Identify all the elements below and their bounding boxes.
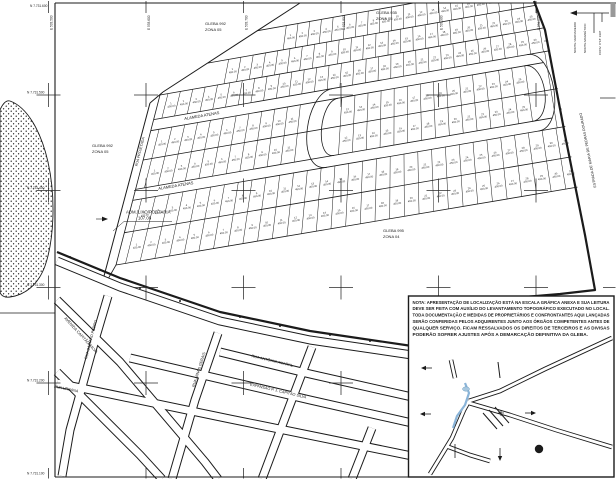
lot-label: 11450.00 [405, 11, 415, 19]
lot-label: 15450.00 [383, 99, 393, 107]
lot-label: 19450.00 [436, 90, 446, 98]
lot-divider [487, 140, 490, 171]
lot-divider [528, 133, 532, 164]
lot-label: 30450.00 [531, 37, 541, 45]
lot-divider [346, 195, 348, 226]
lot-divider [262, 178, 266, 210]
lot-label: 6450.00 [229, 90, 239, 98]
lot-divider [461, 176, 463, 207]
lot-divider [447, 178, 449, 209]
lot-label: 11450.00 [288, 116, 298, 124]
lot-label: 19450.00 [393, 166, 403, 174]
lot-divider [331, 197, 333, 228]
lot-label: 22450.00 [478, 111, 488, 119]
inset-pond [463, 387, 470, 391]
lot-label: 13450.00 [429, 7, 439, 15]
lot-label: 22450.00 [489, 20, 499, 28]
lot-label: 2450.00 [147, 239, 157, 247]
lot-divider [509, 0, 512, 10]
west-street-inner [116, 95, 160, 265]
lot-label: 14450.00 [369, 130, 379, 138]
lot-divider [473, 75, 475, 103]
lot-label: 14450.00 [440, 5, 450, 13]
lot-label: 25450.00 [479, 183, 489, 191]
lot-divider [459, 145, 461, 176]
lot-label: 8450.00 [233, 225, 243, 233]
lot-divider [428, 48, 429, 72]
lot-divider [465, 42, 467, 66]
lot-label: 6450.00 [223, 127, 233, 135]
lot-label: 24450.00 [502, 79, 512, 87]
lot-label: 16450.00 [396, 125, 406, 133]
lot-label: 29450.00 [533, 143, 543, 151]
lot-divider [499, 70, 502, 98]
lot-divider [420, 84, 421, 112]
grid-label-top: E 533.600 [147, 15, 151, 30]
lot-divider [485, 0, 487, 14]
lot-divider [363, 36, 364, 60]
lot-label: 15450.00 [452, 3, 462, 11]
lot-label: 23450.00 [492, 109, 502, 117]
lot-divider [228, 214, 233, 246]
lot-label: 7450.00 [357, 20, 367, 28]
lot-label: 23450.00 [449, 157, 459, 165]
lot-divider [355, 13, 356, 37]
lot-label: 10450.00 [271, 147, 281, 155]
lot-divider [504, 168, 507, 199]
lot-divider [561, 159, 566, 189]
west-street-outer [104, 103, 150, 276]
gleba-top-left-2: ZONA 05 [205, 27, 222, 32]
lot-label: 10450.00 [280, 81, 290, 89]
lot-divider [184, 221, 190, 253]
lot-divider [527, 31, 530, 54]
grid-label-top: E 533.900 [440, 15, 444, 30]
lot-label: 16450.00 [464, 1, 474, 9]
lot-divider [461, 105, 463, 133]
lot-label: 13450.00 [356, 104, 366, 112]
lot-label: 4450.00 [182, 202, 192, 210]
lot-label: 4450.00 [191, 161, 201, 169]
lot-divider [462, 18, 464, 42]
survey-mark [99, 269, 101, 271]
lot-label: 27450.00 [508, 178, 518, 186]
lot-divider [283, 26, 286, 50]
survey-mark [369, 340, 371, 342]
lot-label: 23450.00 [450, 188, 460, 196]
admin-label: ADM./LIXO/PORTARIA [126, 210, 171, 215]
lot-divider [312, 44, 314, 68]
lot-divider [425, 25, 426, 49]
grid-label-top: E 533.500 [50, 15, 54, 30]
lot-label: 5450.00 [217, 92, 227, 100]
lot-divider [276, 175, 280, 207]
lot-divider [474, 16, 476, 40]
lot-label: 4450.00 [265, 60, 275, 68]
lot-label: 3450.00 [310, 28, 320, 36]
lot-divider [360, 192, 361, 223]
lot-label: 1450.00 [167, 100, 177, 108]
lot-label: 8450.00 [244, 152, 254, 160]
lot-divider [450, 20, 451, 44]
lot-divider [518, 166, 522, 197]
lot-divider [325, 42, 327, 66]
lot-label: 6450.00 [217, 156, 227, 164]
lot-divider [511, 10, 514, 33]
lot-label: 20450.00 [451, 116, 461, 124]
lot-divider [437, 23, 438, 47]
lot-label: 5450.00 [278, 57, 288, 65]
lot-label: 1450.00 [286, 32, 296, 40]
gleba-center-1: GLEBA 995 [383, 228, 405, 233]
lot-divider [274, 51, 277, 75]
lot-label: 12450.00 [294, 183, 304, 191]
lot-label: 9450.00 [252, 190, 262, 198]
lot-label: 12450.00 [291, 215, 301, 223]
lot-divider [367, 11, 368, 35]
lot-label: 2450.00 [170, 136, 180, 144]
lot-label: 11450.00 [277, 217, 287, 225]
lot-label: 19450.00 [452, 27, 462, 35]
lot-divider [561, 49, 568, 87]
lot-label: 13450.00 [306, 212, 316, 220]
lot-label: 3450.00 [192, 96, 202, 104]
lot-divider [502, 98, 505, 126]
lot-divider [523, 7, 526, 30]
lot-label: 3450.00 [161, 237, 171, 245]
lot-divider [244, 114, 249, 143]
lot-label: 1450.00 [132, 242, 142, 250]
gleba-boundary-nw [163, 3, 300, 92]
lot-label: 30450.00 [552, 171, 562, 179]
lot-divider [542, 130, 547, 161]
lot-divider [552, 26, 556, 49]
lot-label: 30450.00 [547, 140, 557, 148]
lot-divider [300, 46, 303, 70]
lot-label: 9450.00 [258, 149, 268, 157]
lot-label: 1450.00 [150, 168, 160, 176]
lot-divider [453, 44, 454, 68]
lot-divider [276, 74, 279, 98]
lot-divider [253, 140, 257, 169]
lot-divider [297, 105, 300, 134]
lot-label: 13450.00 [308, 181, 318, 189]
lot-divider [520, 0, 523, 7]
street-alameda-b: ALAMEDA ATENAS [158, 180, 194, 191]
lot-label: 24450.00 [463, 155, 473, 163]
lot-label: 7450.00 [236, 125, 246, 133]
survey-mark [69, 256, 71, 258]
north-arrow-icon: NORTE VERDADEIRO NORTE MAGNÉTICO CONV. 0… [570, 2, 616, 55]
lot-divider [366, 121, 367, 149]
lot-divider [304, 171, 307, 203]
lot-label: 4450.00 [196, 132, 206, 140]
lot-label: 3450.00 [177, 163, 187, 171]
lot-label: 25450.00 [468, 48, 478, 56]
lot-label: 2450.00 [298, 30, 308, 38]
lot-divider [213, 147, 218, 176]
lot-divider [575, 156, 580, 186]
lot-label: 24450.00 [514, 16, 524, 24]
lot-divider [375, 190, 376, 221]
lot-divider [474, 0, 476, 16]
lot-label: 18450.00 [424, 121, 434, 129]
lot-label: 16450.00 [396, 97, 406, 105]
lot-label: 11450.00 [352, 44, 362, 52]
lot-label: 16450.00 [415, 33, 425, 41]
lot-label: 19450.00 [392, 198, 402, 206]
lot-label: 20450.00 [405, 59, 415, 67]
lot-label: 16450.00 [355, 68, 365, 76]
lot-divider [365, 59, 366, 83]
lot-label: 28450.00 [506, 41, 516, 49]
location-inset: NOTA: APRESENTAÇÃO DE LOCALIZAÇÃO ESTÁ N… [409, 296, 615, 477]
lot-label: 13450.00 [377, 40, 387, 48]
lot-label: 4450.00 [322, 26, 332, 34]
lot-label: 13450.00 [355, 132, 365, 140]
lot-divider [459, 77, 461, 105]
lot-divider [258, 111, 262, 140]
lot-label: 26450.00 [480, 46, 490, 54]
lot-divider [502, 35, 505, 58]
lot-label: 14450.00 [370, 102, 380, 110]
lot-label: 17450.00 [367, 65, 377, 73]
lot-label: 21450.00 [421, 162, 431, 170]
note-line: DEVE SER FEITA COM AUXÍLIO DO LEVANTAMEN… [413, 304, 610, 311]
lot-label: 27450.00 [493, 44, 503, 52]
lot-label: 5450.00 [210, 129, 220, 137]
subdivision-lots: 1450.002450.003450.004450.005450.006450.… [116, 0, 590, 265]
lot-label: 9450.00 [267, 83, 277, 91]
lot-divider [434, 110, 435, 138]
lot-divider [205, 187, 211, 219]
lot-divider [199, 219, 205, 251]
lot-divider [433, 180, 434, 211]
grid-label-left: N 7.731.500 [27, 91, 45, 95]
lot-label: 10450.00 [340, 46, 350, 54]
lot-divider [319, 19, 321, 43]
lot-divider [488, 101, 491, 129]
lot-label: 25450.00 [477, 152, 487, 160]
street-estrada: ESTRADA DE MARIA DE PEDRAS DOURADO [579, 112, 597, 188]
lot-divider [290, 173, 293, 205]
lot-label: 15450.00 [342, 70, 352, 78]
lot-label: 24450.00 [455, 50, 465, 58]
lot-label: 15450.00 [402, 36, 412, 44]
lot-label: 22450.00 [476, 83, 486, 91]
lot-divider [497, 0, 500, 12]
survey-mark [329, 334, 331, 336]
lot-divider [515, 96, 518, 124]
lot-divider [427, 1, 428, 25]
lot-divider [240, 143, 245, 172]
lot-label: 26450.00 [494, 180, 504, 188]
lot-label: 6450.00 [205, 229, 215, 237]
lot-label: 22450.00 [436, 190, 446, 198]
lot-divider [170, 224, 177, 256]
lot-label: 9450.00 [262, 120, 272, 128]
lot-divider [568, 87, 575, 125]
grid-label-top: E 533.800 [342, 15, 346, 30]
row-boundary [116, 185, 590, 265]
lot-divider [446, 79, 447, 107]
admin-area: 107.08 [138, 216, 152, 221]
gleba-mid-left-1: GLEBA 992 [92, 143, 114, 148]
street-west: RUA PROJETADA [134, 136, 145, 166]
lot-label: 18450.00 [378, 200, 388, 208]
note-line: PODERÃO SOFRER AJUSTES APÓS A DEMARCAÇÃO… [413, 330, 588, 337]
lot-divider [525, 66, 529, 94]
lot-label: 18450.00 [378, 169, 388, 177]
lot-label: 5450.00 [196, 200, 206, 208]
lot-label: 24450.00 [506, 107, 516, 115]
lot-divider [547, 161, 552, 192]
lot-divider [338, 40, 340, 64]
lot-divider [380, 119, 381, 147]
lot-divider [548, 3, 552, 26]
sheet-corner-strip [611, 2, 616, 17]
north-arrow-head [570, 10, 577, 15]
lot-label: 27450.00 [505, 147, 515, 155]
lot-label: 2450.00 [179, 98, 189, 106]
street-edge [136, 118, 553, 189]
lot-label: 21450.00 [462, 86, 472, 94]
lot-divider [499, 12, 502, 35]
lot-divider [295, 23, 298, 47]
grid-label-top: E 533.700 [245, 15, 249, 30]
lot-label: 17450.00 [427, 31, 437, 39]
lot-divider [350, 38, 351, 62]
lot-divider [551, 90, 557, 128]
north-label: NORTE VERDADEIRO [573, 21, 577, 53]
lot-label: 8450.00 [238, 193, 248, 201]
gleba-boundary-nw [150, 92, 163, 103]
gleba-mid-left-2: ZONA 05 [92, 149, 109, 154]
lot-label: 6450.00 [345, 22, 355, 30]
lot-label: 23450.00 [489, 81, 499, 89]
gleba-center-2: ZONA 04 [383, 234, 400, 239]
note-line: NOTA: APRESENTAÇÃO DE LOCALIZAÇÃO ESTÁ N… [413, 299, 611, 305]
lot-label: 15450.00 [383, 128, 393, 136]
lot-label: 19450.00 [393, 61, 403, 69]
lot-divider [529, 94, 533, 122]
lot-divider [272, 207, 276, 239]
lot-divider [251, 78, 255, 102]
lot-label: 29450.00 [518, 39, 528, 47]
note-line: TODA DOCUMENTAÇÃO E MEDIDAS DE PROPRIETÁ… [413, 312, 610, 318]
lot-label: 17450.00 [364, 203, 374, 211]
grid-label-left: N 7.731.400 [27, 186, 45, 190]
lot-label: 9450.00 [248, 222, 258, 230]
lot-divider [294, 133, 297, 162]
lot-divider [486, 73, 489, 101]
lot-divider [262, 53, 266, 77]
survey-mark [279, 325, 281, 327]
lot-divider [289, 72, 292, 96]
lot-divider [418, 152, 419, 183]
lot-divider [432, 149, 433, 180]
lot-label: 29450.00 [537, 173, 547, 181]
lot-label: 11450.00 [285, 145, 295, 153]
lot-label: 17450.00 [409, 95, 419, 103]
site-marker-dot [535, 445, 543, 453]
lot-label: 2450.00 [240, 64, 250, 72]
lot-label: 7450.00 [303, 53, 313, 61]
lot-label: 18450.00 [423, 93, 433, 101]
lot-label: 16450.00 [349, 205, 359, 213]
lot-label: 10450.00 [266, 188, 276, 196]
lot-label: 22450.00 [430, 54, 440, 62]
lot-divider [514, 135, 518, 166]
lot-label: 28450.00 [523, 176, 533, 184]
lot-label: 24450.00 [465, 185, 475, 193]
survey-mark [179, 300, 181, 302]
lot-label: 10450.00 [262, 220, 272, 228]
lot-label: 4450.00 [204, 94, 214, 102]
lot-label: 16450.00 [350, 174, 360, 182]
grid-label-left: N 7.731.300 [27, 283, 45, 287]
lot-label: 18450.00 [380, 63, 390, 71]
lot-label: 11450.00 [280, 186, 290, 194]
vegetation-hatch [0, 101, 53, 297]
cadastral-map: 1450.002450.003450.004450.005450.006450.… [0, 0, 616, 479]
lot-divider [490, 37, 492, 60]
lot-label: 13450.00 [317, 74, 327, 82]
note-line: SERÃO CONFERIDAS PELOS ADQUIRENTES JUNTO… [413, 317, 610, 324]
note-line: QUALQUER SERVIÇO. FICAM RESSALVADOS OS D… [413, 325, 610, 330]
lot-divider [281, 136, 284, 165]
lot-divider [271, 109, 275, 138]
lot-divider [214, 217, 219, 249]
lot-divider [475, 103, 477, 131]
lot-divider [441, 46, 442, 70]
lot-divider [381, 91, 382, 119]
lot-divider [287, 49, 290, 73]
lot-divider [473, 142, 475, 173]
lot-label: 22450.00 [435, 159, 445, 167]
lot-divider [475, 173, 477, 204]
lot-label: 8450.00 [249, 123, 259, 131]
lot-divider [490, 171, 493, 202]
lot-divider [445, 147, 447, 178]
lot-divider [226, 145, 231, 174]
lot-label: 5450.00 [204, 158, 214, 166]
lot-label: 12450.00 [343, 106, 353, 114]
lot-divider [486, 14, 488, 37]
lot-label: 12450.00 [365, 42, 375, 50]
lot-label: 19450.00 [500, 0, 510, 3]
lot-divider [421, 112, 422, 140]
lot-label: 7450.00 [231, 154, 241, 162]
lot-label: 26450.00 [491, 150, 501, 158]
lot-label: 7450.00 [219, 227, 229, 235]
lot-divider [515, 33, 518, 56]
lot-divider [258, 209, 262, 241]
lot-divider [287, 205, 290, 237]
gate-arrow-icon [102, 217, 108, 222]
lot-label: 21450.00 [465, 114, 475, 122]
lot-divider [375, 33, 376, 57]
lot-label: 20450.00 [464, 25, 474, 33]
lot-label: 8450.00 [315, 51, 325, 59]
lot-divider [302, 202, 305, 234]
lot-divider [327, 65, 329, 89]
lot-divider [540, 29, 544, 52]
lot-label: 17450.00 [364, 171, 374, 179]
lot-divider [556, 128, 561, 158]
lot-label: 23450.00 [443, 52, 453, 60]
lot-label: 1450.00 [157, 138, 167, 146]
